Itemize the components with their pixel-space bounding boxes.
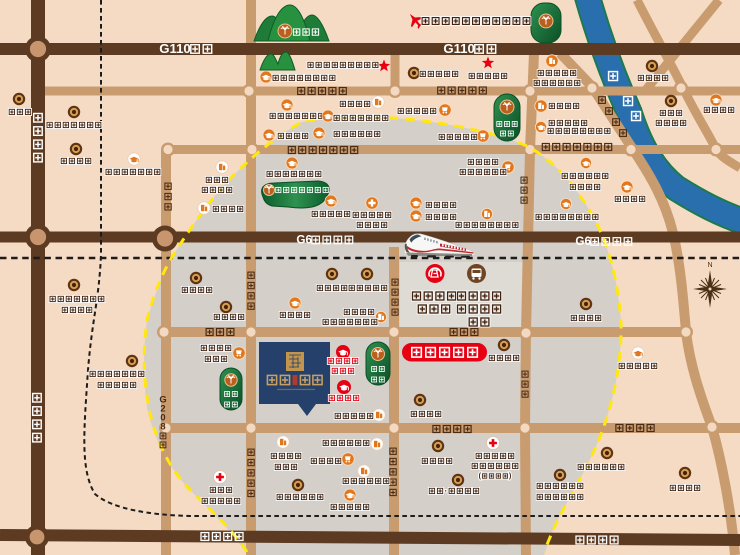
- svg-text:8: 8: [160, 421, 165, 432]
- svg-text:G6: G6: [575, 235, 591, 248]
- svg-text:G6: G6: [296, 234, 312, 247]
- svg-text:G110: G110: [443, 41, 475, 56]
- svg-text:G110: G110: [159, 41, 191, 56]
- svg-text:N: N: [707, 262, 712, 269]
- svg-text:): ): [509, 473, 511, 480]
- svg-text:·: ·: [445, 486, 448, 496]
